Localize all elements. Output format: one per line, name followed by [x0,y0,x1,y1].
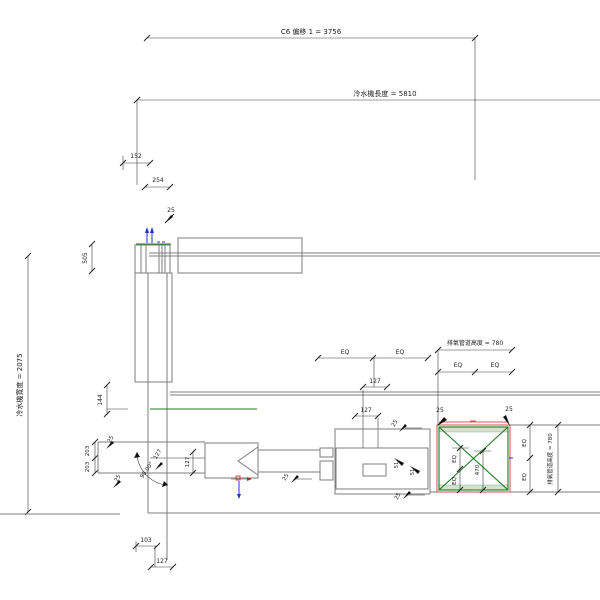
cad-drawing-canvas: C6 偏移 1 = 3756 冷水機長度 = 5810 152 254 25 冷… [0,0,600,600]
arrowhead [155,462,163,470]
dim-505: 505 [82,241,95,274]
dim-exhaust-duct-height-top: 排氣管道高度 = 780 EQ EQ [435,339,515,425]
reducer-cone [238,447,258,475]
dim-label-eq: EQ [491,362,500,369]
floor-border [0,513,600,514]
dim-chiller-length: 冷水機長度 = 5810 [134,89,600,185]
dim-103: 103 [133,537,160,552]
duct-elbow-left: 203 203 25 25 90.00° 127 127 [85,435,205,488]
cad-drawing: C6 偏移 1 = 3756 冷水機長度 = 5810 152 254 25 冷… [0,0,600,600]
dim-127-bottom: 127 [148,546,176,570]
dim-label-144: 144 [97,394,104,406]
dim-label-eq: EQ [452,476,458,484]
dim-label-eq: EQ [522,438,528,446]
dim-label-eq: EQ [341,349,350,356]
dim-c6-offset: C6 偏移 1 = 3756 [144,27,478,180]
dim-label-127-bottom: 127 [156,558,168,565]
dim-label-angle-90: 90.00° [139,461,155,480]
dim-label-127-mid: 127 [369,378,381,385]
damper-band-top [439,427,508,432]
dim-152: 152 [120,153,153,170]
pipe-flange [320,461,333,480]
arrowhead [165,215,173,223]
flow-arrow-icon [145,227,165,243]
dim-label-eq: EQ [396,349,405,356]
dim-label-127-elbow-a: 127 [153,448,164,461]
dim-label-470: 470 [475,464,481,475]
dim-label-127-elbow-b: 127 [185,456,191,467]
left-tall-unit [135,273,172,382]
dim-label-25-pipe: 25 [282,473,291,482]
dim-label-25-unit-top: 25 [391,419,400,428]
right-duct [510,425,600,492]
dim-label-25-box-right: 25 [505,406,513,413]
exhaust-fan-unit: 25 25 51 51 [335,419,437,501]
dim-label-chiller-width: 冷水機寬度 = 2075 [15,353,24,416]
arrowhead [503,415,510,426]
dim-label-203-bottom: 203 [85,461,91,472]
ucs-axis-icon [231,476,252,499]
dim-label-25-unit-bottom: 25 [394,492,403,501]
dim-144: 144 [97,382,128,417]
dim-label-505: 505 [82,252,89,264]
dim-eq-right: EQ EQ [522,422,533,495]
fan-motor-box [363,464,386,476]
dim-label-c6-offset: C6 偏移 1 = 3756 [281,27,342,36]
dim-254: 254 [142,177,173,190]
dim-label-eq: EQ [452,454,458,462]
dim-label-exhaust-height-top: 排氣管道高度 = 780 [447,339,503,347]
dim-label-25-top: 25 [167,207,175,214]
dim-label-eq: EQ [522,472,528,480]
dim-label-exhaust-height-right: 排氣管道高度 = 780 [546,433,554,485]
pipe-flange [320,448,333,457]
duct-reducer: 25 [205,443,333,483]
fan-outer-box [335,429,430,494]
dim-127-lower: 127 [352,407,381,448]
dim-label-254: 254 [152,177,164,184]
dim-label-eq: EQ [454,362,463,369]
dim-label-203-top: 203 [85,445,91,456]
dim-label-152: 152 [130,153,142,160]
damper-box: 25 25 EQ EQ 470 [436,406,513,493]
chiller-machine [135,227,600,560]
damper-band-bottom [439,485,508,490]
dim-exhaust-duct-height-right: 排氣管道高度 = 780 [546,422,561,495]
dim-label-103: 103 [140,537,152,544]
dim-chiller-width: 冷水機寬度 = 2075 [15,253,31,515]
dim-25-top: 25 [165,207,175,223]
dim-label-127-lower: 127 [360,407,372,414]
arrowhead [134,452,140,458]
dim-label-chiller-length: 冷水機長度 = 5810 [353,89,416,98]
dim-label-25-box-left: 25 [436,407,444,414]
